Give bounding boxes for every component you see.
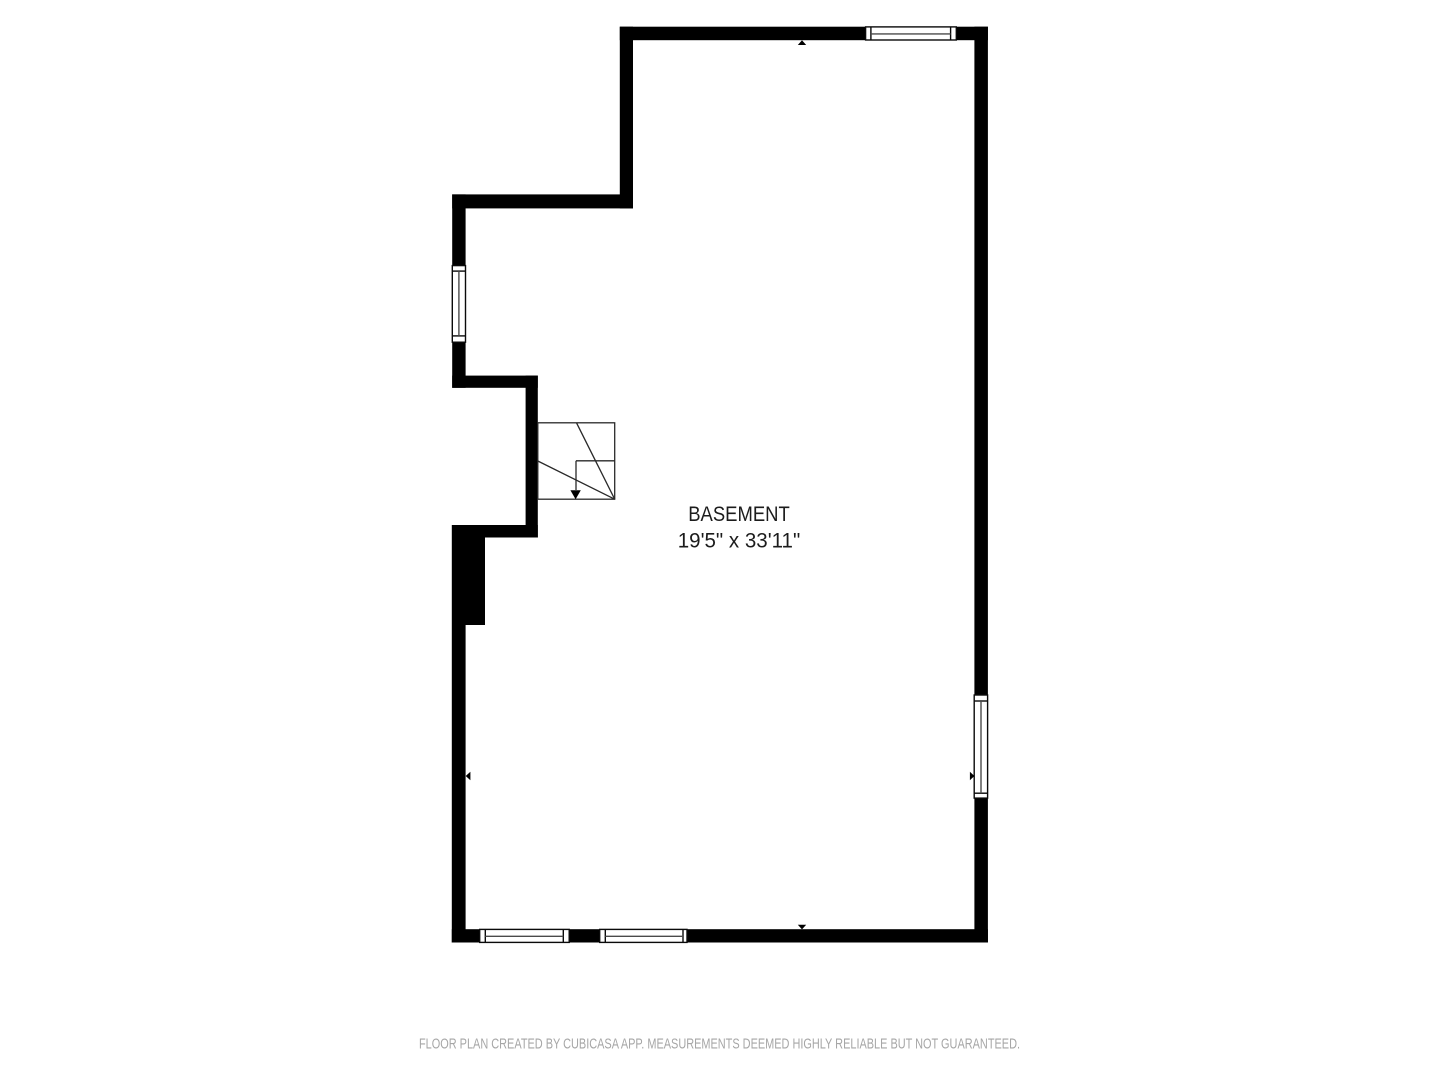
svg-text:FLOOR PLAN CREATED BY CUBICASA: FLOOR PLAN CREATED BY CUBICASA APP. MEAS… — [419, 1037, 1020, 1053]
svg-text:19'5" x 33'11": 19'5" x 33'11" — [678, 530, 801, 553]
svg-text:BASEMENT: BASEMENT — [688, 503, 790, 526]
